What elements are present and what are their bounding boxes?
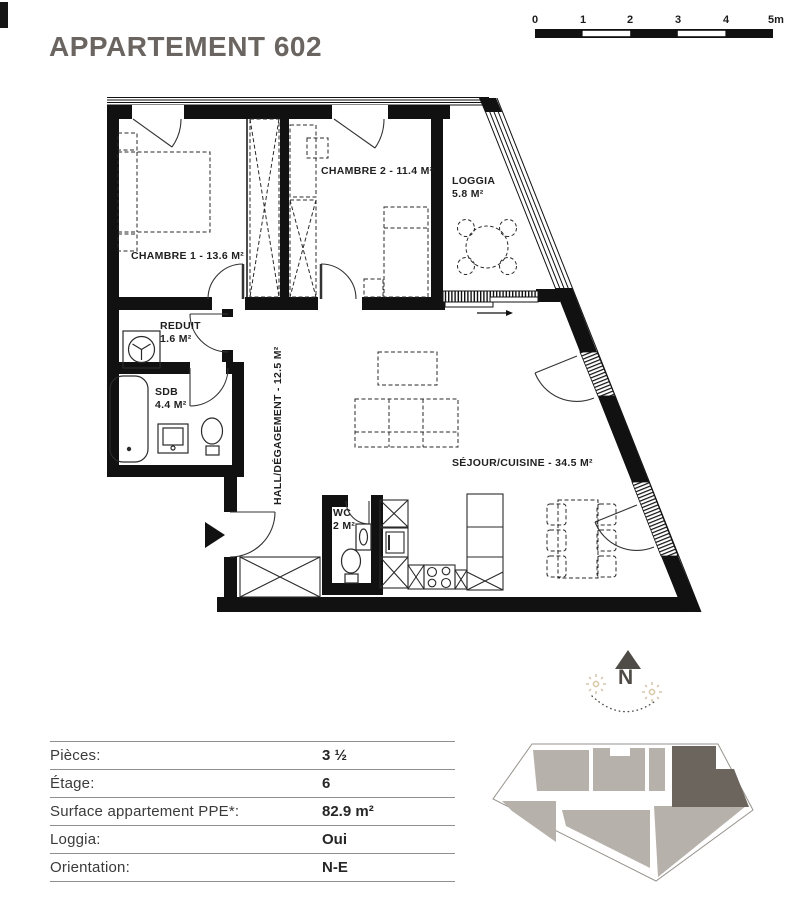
room-label-sejour: SÉJOUR/CUISINE - 34.5 M² <box>452 457 593 470</box>
row-value: N-E <box>322 859 348 876</box>
loggia-table-chairs <box>458 220 517 275</box>
wc-sink <box>356 524 371 550</box>
diagonal-facade <box>479 98 701 612</box>
apartment-602-highlight <box>672 746 749 807</box>
building-key-map <box>493 744 753 881</box>
entrance-arrow-icon <box>205 522 225 548</box>
table-row: Orientation: N-E <box>50 853 455 882</box>
scale-tick-5: 5m <box>768 14 784 26</box>
room-label-loggia: LOGGIA 5.8 M² <box>452 175 495 201</box>
row-label: Loggia: <box>50 831 101 848</box>
dining-chairs <box>547 504 616 577</box>
row-label: Étage: <box>50 775 95 792</box>
furniture-dashed <box>118 119 616 578</box>
dining-table <box>558 500 598 578</box>
scale-tick-0: 0 <box>532 14 538 26</box>
floorplan-page: APPARTEMENT 602 0 1 2 3 4 5m CHAMBRE 1 -… <box>0 0 804 903</box>
row-value: Oui <box>322 831 347 848</box>
entrance-closet <box>240 557 320 597</box>
table-row: Loggia: Oui <box>50 825 455 853</box>
room-label-chambre1: CHAMBRE 1 - 13.6 M² <box>131 250 244 263</box>
sdb-toilet <box>202 418 223 455</box>
room-label-sdb: SDB 4.4 M² <box>155 386 187 412</box>
sofa <box>355 399 458 447</box>
page-title: APPARTEMENT 602 <box>49 31 322 63</box>
page-edge-strip <box>0 2 8 28</box>
scale-bar <box>535 29 773 38</box>
coffee-table <box>378 352 437 385</box>
table-row: Surface appartement PPE*: 82.9 m² <box>50 797 455 825</box>
scale-tick-2: 2 <box>627 14 633 26</box>
row-value: 3 ½ <box>322 747 347 764</box>
table-row: Pièces: 3 ½ <box>50 741 455 769</box>
row-label: Pièces: <box>50 747 101 764</box>
scale-tick-1: 1 <box>580 14 586 26</box>
details-table: Pièces: 3 ½ Étage: 6 Surface appartement… <box>50 741 455 882</box>
wc-toilet <box>342 549 361 583</box>
sdb-sink <box>158 424 188 453</box>
row-label: Surface appartement PPE*: <box>50 803 239 820</box>
room-label-wc: WC 2 M² <box>333 507 355 533</box>
sun-icon <box>586 674 606 694</box>
fridge-column <box>467 494 503 590</box>
row-value: 6 <box>322 775 330 792</box>
row-label: Orientation: <box>50 859 130 876</box>
room-label-chambre2: CHAMBRE 2 - 11.4 M² <box>321 165 433 178</box>
stove <box>424 565 455 589</box>
scale-tick-4: 4 <box>723 14 729 26</box>
sun-icon <box>642 682 662 702</box>
bed-chambre1 <box>118 152 210 232</box>
room-label-reduit: REDUIT 1.6 M² <box>160 320 201 346</box>
room-label-hall: HALL/DÉGAGEMENT - 12.5 M² <box>272 346 284 505</box>
row-value: 82.9 m² <box>322 803 374 820</box>
table-row: Étage: 6 <box>50 769 455 797</box>
bed-chambre2 <box>384 207 428 297</box>
north-label: N <box>618 666 633 690</box>
oven <box>380 528 408 557</box>
loggia-elements <box>443 220 538 317</box>
kitchen <box>380 494 503 590</box>
scale-tick-3: 3 <box>675 14 681 26</box>
